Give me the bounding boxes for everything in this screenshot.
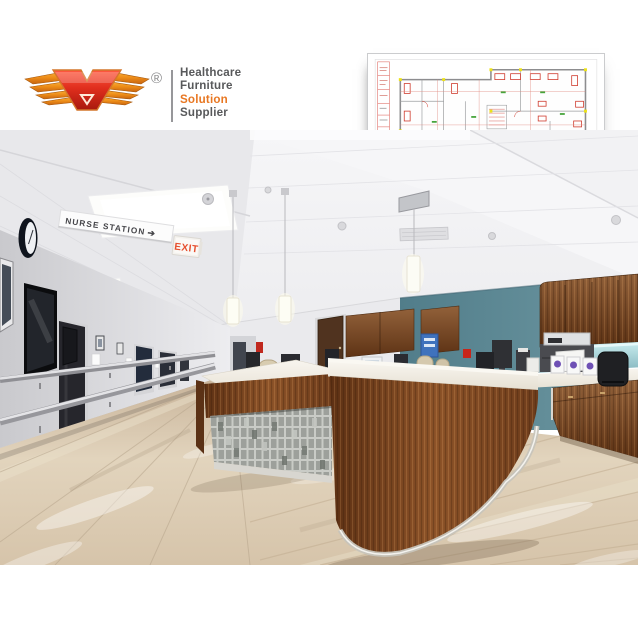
- far-door: [233, 342, 246, 372]
- wall-art-frame: [96, 336, 104, 350]
- page: ® Healthcare Furniture Solution Supplier: [0, 0, 638, 638]
- brand-line-supplier: Supplier: [180, 106, 241, 119]
- glove-dispenser-box: [421, 334, 438, 357]
- cabinet-handle: [568, 396, 573, 398]
- logo-divider: [171, 70, 173, 122]
- supply-box: [527, 358, 539, 372]
- brand-wordmark: Healthcare Furniture Solution Supplier: [180, 66, 241, 120]
- ceiling-speaker-icon: [203, 194, 214, 205]
- red-outlet: [463, 349, 471, 358]
- brand-line-solution: Solution: [180, 93, 241, 106]
- pendant-shade: [279, 296, 291, 322]
- exit-sign: EXIT: [172, 235, 203, 257]
- wall-art-frame-near: [0, 258, 13, 332]
- brand-logo-icon: [24, 66, 150, 120]
- can-light: [612, 216, 621, 225]
- wall-art-frame: [117, 343, 123, 354]
- can-light: [265, 187, 271, 193]
- pendant-shade: [227, 298, 239, 324]
- small-display: [63, 327, 77, 365]
- office-chair-black: [598, 352, 628, 386]
- room-sign: [92, 354, 100, 365]
- cabinet-handle: [600, 392, 605, 394]
- can-light: [338, 222, 346, 230]
- can-light: [489, 233, 496, 240]
- pendant-shade: [407, 256, 420, 292]
- brand-line-healthcare: Healthcare: [180, 66, 241, 79]
- desk-end-panel: [196, 380, 204, 454]
- brand-line-furniture: Furniture: [180, 79, 241, 92]
- nurse-station-photo: NURSE STATION ➔ EXIT: [0, 130, 638, 565]
- fire-alarm-box: [256, 342, 263, 353]
- wipe-dispensers: [551, 356, 597, 375]
- ceiling-vent: [400, 227, 448, 241]
- registered-trademark: ®: [151, 70, 162, 87]
- logo-emblem: [53, 70, 121, 110]
- wall-tv: [24, 283, 57, 379]
- wall-clock-icon: [19, 218, 38, 258]
